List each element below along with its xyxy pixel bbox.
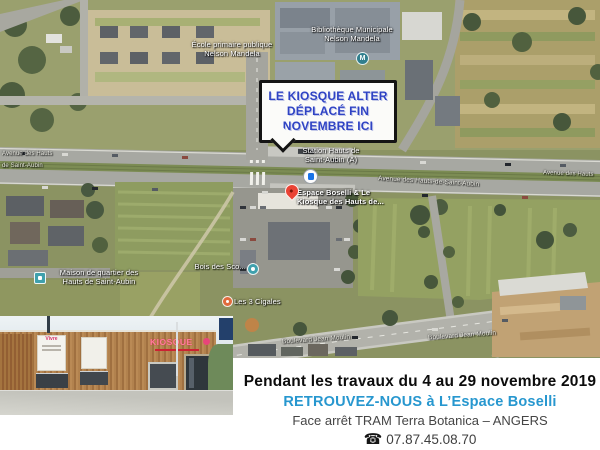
tram-station-icon xyxy=(303,169,318,184)
allotment-gardens xyxy=(455,0,600,148)
photo-panel-line xyxy=(42,345,61,347)
photo-window-3 xyxy=(148,362,178,390)
footer-phone-number: 07.87.45.08.70 xyxy=(386,432,476,447)
street-label-avenue-left-1: Avenue des Hauts xyxy=(2,151,53,158)
map-label-school: École primaire publique Nelson Mandela xyxy=(172,40,292,58)
photo-window-1 xyxy=(36,373,68,388)
photo-poster-panel-2 xyxy=(82,338,106,368)
photo-greenery xyxy=(208,344,233,392)
map-label-library: Bibliothèque Municipale Nelson Mandela xyxy=(292,25,412,43)
construction-zone xyxy=(492,272,600,357)
map-label-maison-quartier: Maison de quartier des Hauts de Saint-Au… xyxy=(44,268,154,286)
photo-flag-pole xyxy=(47,316,50,333)
photo-poster-panel-1: Vivre xyxy=(38,336,65,370)
photo-panel-line xyxy=(42,349,61,351)
photo-building-wing xyxy=(0,334,33,392)
map-label-cigales: Les 3 Cigales xyxy=(234,297,296,306)
satellite-map: École primaire publique Nelson Mandela B… xyxy=(0,0,600,358)
footer-location: Face arrêt TRAM Terra Botanica – ANGERS xyxy=(242,413,598,428)
cigales-poi-icon xyxy=(222,296,233,307)
satellite-map-svg xyxy=(0,0,600,358)
phone-icon: ☎ xyxy=(364,431,383,448)
photo-sign-logo-dot xyxy=(203,338,210,345)
bois-poi-icon xyxy=(247,263,259,275)
flyer-poster: École primaire publique Nelson Mandela B… xyxy=(0,0,600,450)
footer-works-dates: Pendant les travaux du 4 au 29 novembre … xyxy=(242,373,598,391)
map-label-espace-boselli: Espace Boselli & Le Kiosque des Hauts de… xyxy=(297,188,389,206)
map-label-bois: Bois des Sco... xyxy=(190,262,246,271)
street-label-avenue-left-2: de Saint-Aubin xyxy=(2,163,43,170)
photo-pavement xyxy=(0,390,233,415)
footer-find-us: RETROUVEZ-NOUS à L’Espace Boselli xyxy=(242,394,598,410)
photo-banner xyxy=(219,318,233,340)
footer-text-block: Pendant les travaux du 4 au 29 novembre … xyxy=(242,373,598,448)
map-label-tram-station: Station Hauts de Saint-Aubin (A) xyxy=(281,146,381,164)
photo-window-2 xyxy=(80,371,108,385)
photo-panel-text: Vivre xyxy=(38,336,65,343)
library-marker-icon: M xyxy=(356,52,369,65)
kiosque-photo-inset: Vivre KIOSQUE xyxy=(0,316,233,415)
photo-lamp-post xyxy=(176,322,178,376)
library-marker-letter: M xyxy=(360,55,366,62)
footer-phone-row: ☎07.87.45.08.70 xyxy=(242,430,598,448)
